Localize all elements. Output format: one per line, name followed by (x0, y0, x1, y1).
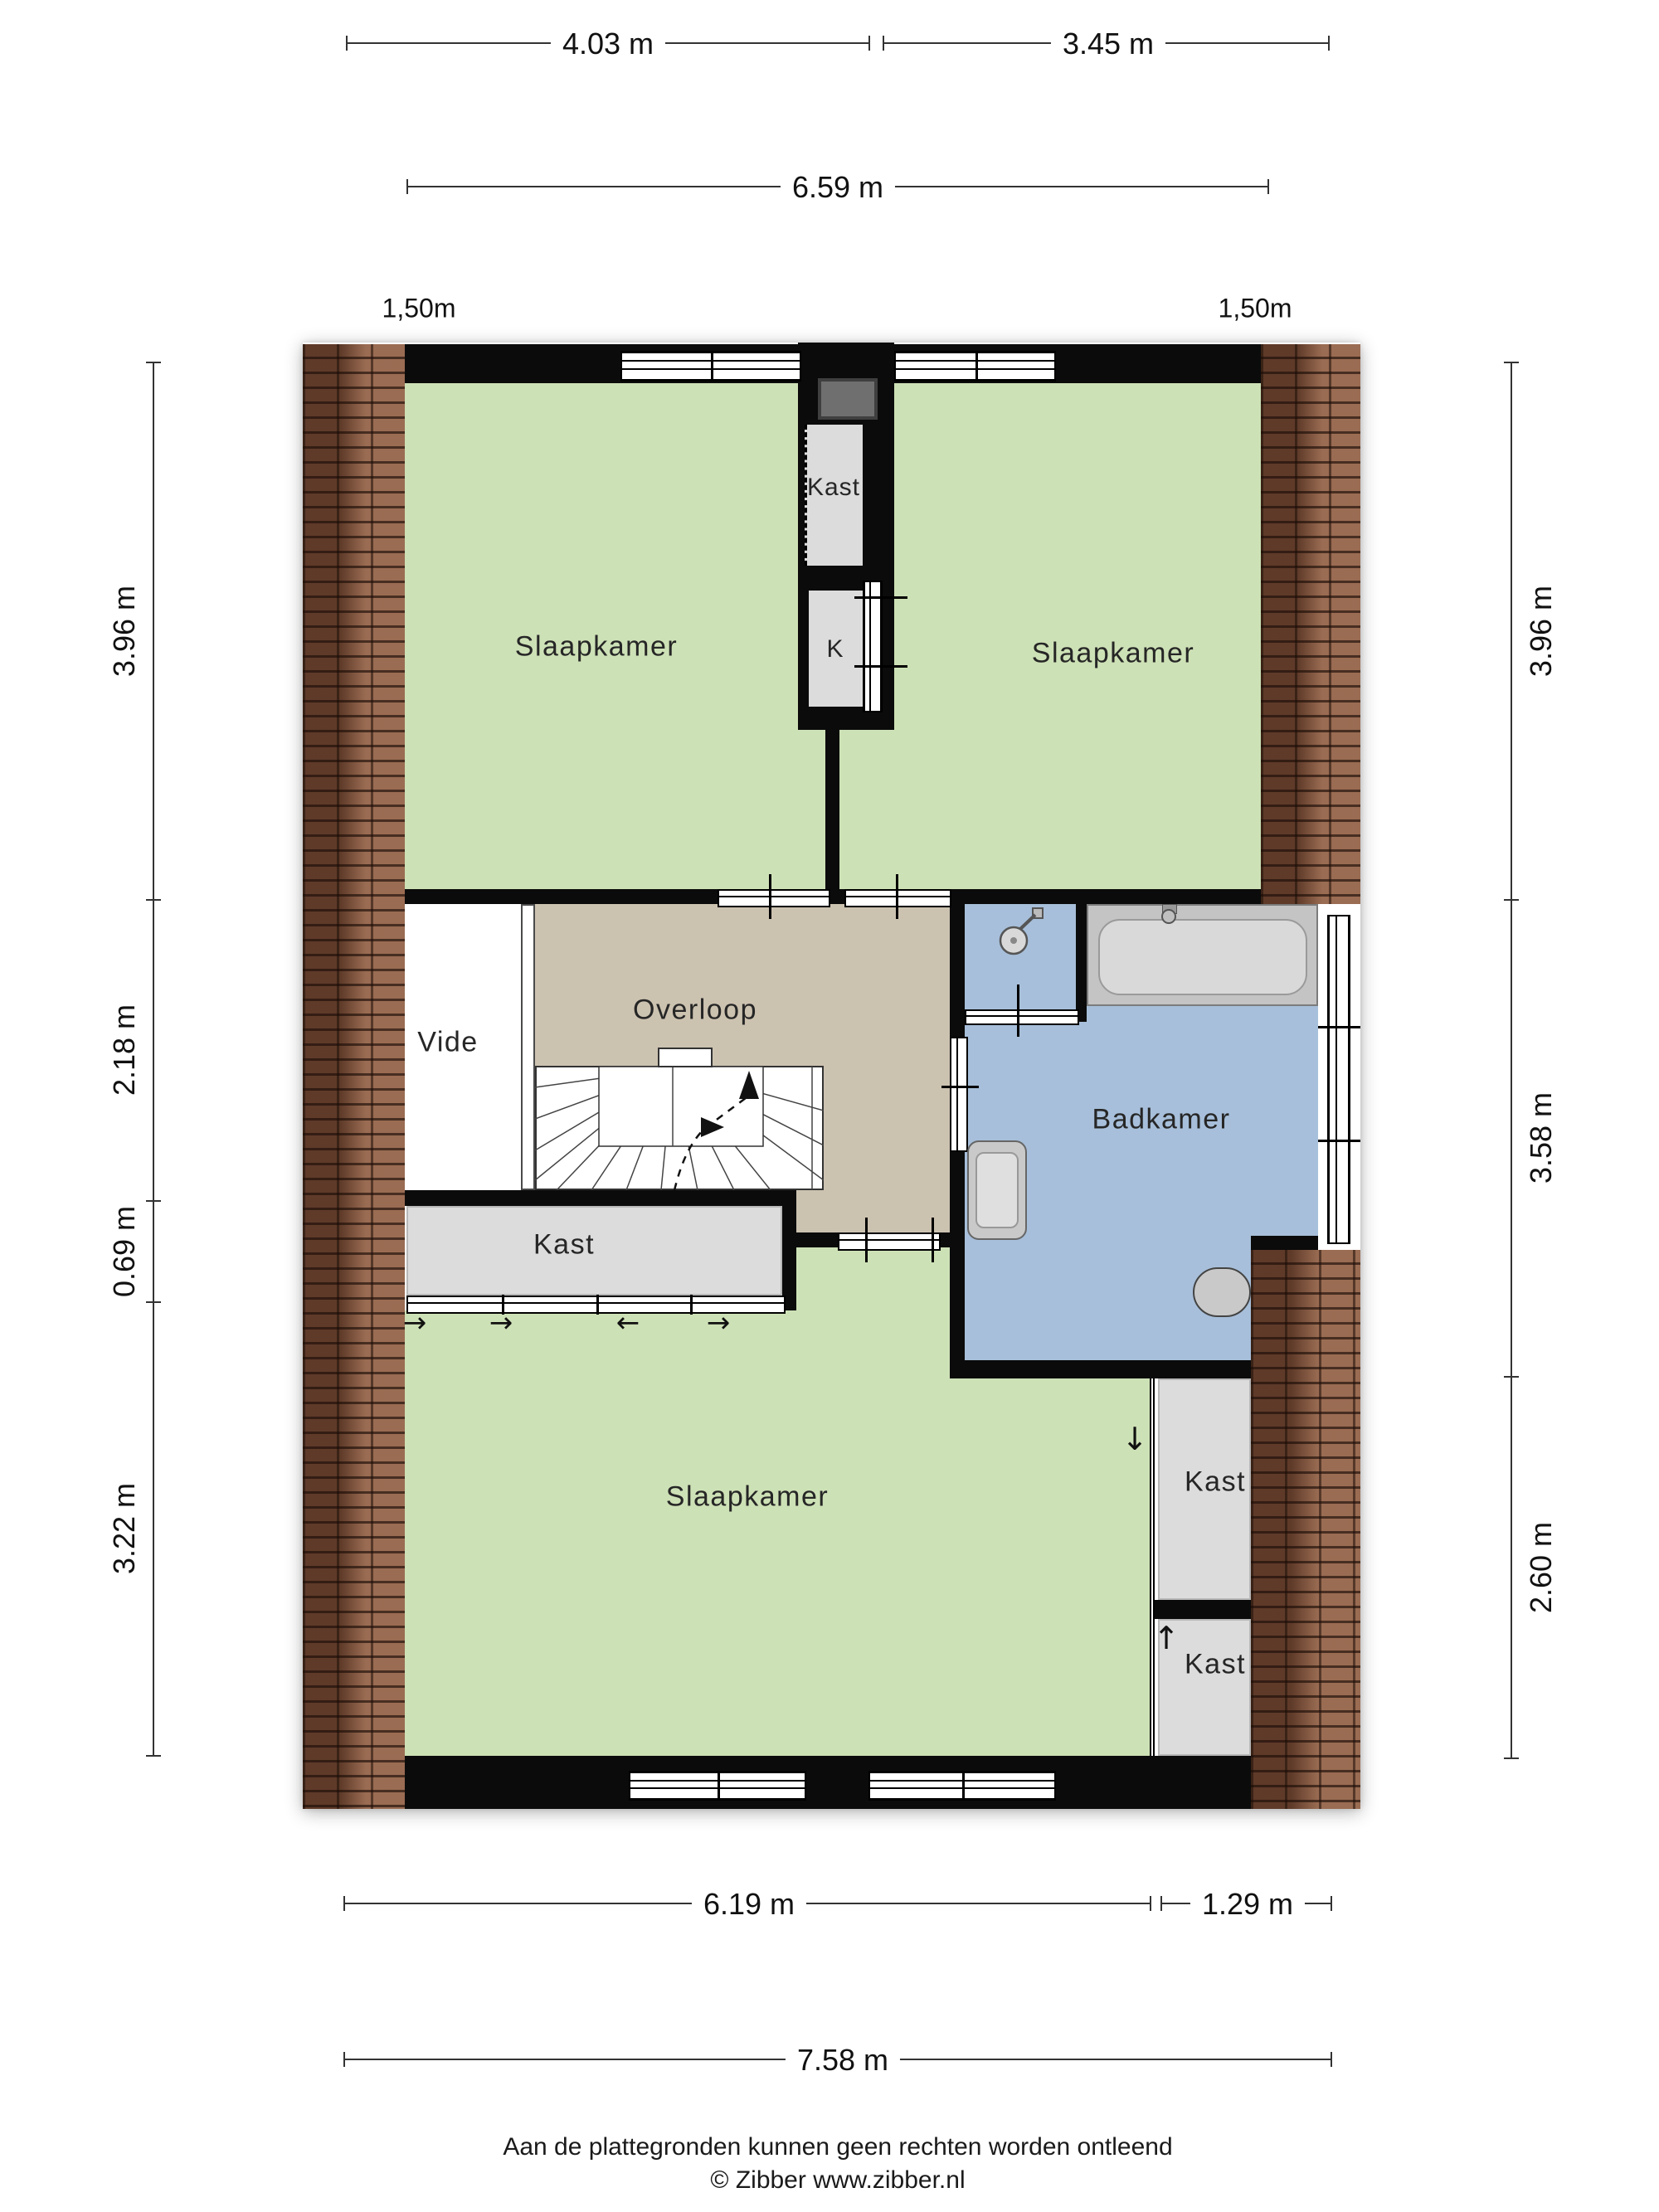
wall-badkamer-bottom (950, 1360, 1251, 1378)
wall-kast-separator (1150, 1600, 1251, 1619)
room-label-slaapkamer-tl: Slaapkamer (515, 631, 678, 664)
door-tick (1017, 984, 1019, 1037)
dimension-line-right (1511, 362, 1512, 1758)
window-symbol (868, 1771, 1056, 1801)
dimension-tick (146, 362, 161, 363)
wall-below-stairs (405, 1190, 796, 1206)
dimension-label-top-3: 6.59 m (781, 170, 895, 205)
room-label-k: K (826, 635, 844, 664)
window-symbol (894, 351, 1056, 382)
room-label-kast-right-bottom: Kast (1185, 1649, 1246, 1681)
toilet-icon (1193, 1267, 1251, 1317)
dimension-tick (1328, 36, 1330, 51)
window-tick (1318, 1026, 1360, 1028)
door-tick (896, 874, 898, 919)
dimension-label-right-2: 3.58 m (1524, 1084, 1559, 1192)
wall-kast-left-side (782, 1190, 796, 1310)
vide-railing (521, 904, 535, 1190)
room-slaapkamer-top-right (832, 383, 1261, 889)
knee-wall-label-right: 1,50m (1219, 294, 1292, 324)
dimension-label-bottom-1: 6.19 m (692, 1887, 806, 1922)
room-slaapkamer-bottom (782, 1310, 796, 1756)
sliding-door-track (1150, 1378, 1155, 1756)
dimension-tick (346, 36, 348, 51)
door-symbol (965, 1009, 1079, 1025)
door-tick (769, 874, 771, 919)
dimension-tick (343, 2052, 345, 2067)
dimension-tick (1331, 1896, 1332, 1911)
door-symbol (950, 1037, 968, 1152)
kast-door-arrow-icon: ↓ (1121, 1421, 1148, 1457)
wall-shower-right (1076, 904, 1087, 1022)
dimension-tick (146, 1755, 161, 1757)
dimension-label-right-1: 3.96 m (1524, 577, 1559, 685)
footer-copyright: © Zibber www.zibber.nl (710, 2166, 965, 2195)
window-tick (1318, 1140, 1360, 1142)
roof-brick-right-top (1261, 344, 1360, 904)
slide-arrow-icon: → (707, 1306, 731, 1339)
dimension-tick (1504, 899, 1519, 901)
bathtub-faucet-icon (1161, 909, 1176, 924)
door-tick (854, 596, 907, 599)
window-symbol (863, 581, 883, 712)
knee-wall-label-left: 1,50m (382, 294, 456, 324)
dimension-tick (406, 179, 408, 194)
dimension-tick (1150, 1896, 1151, 1911)
dimension-tick (343, 1896, 345, 1911)
room-slaapkamer-bottom (405, 1310, 782, 1756)
floorplan-page: 4.03 m 3.45 m 6.59 m 1,50m 1,50m 3.96 m … (0, 0, 1659, 2212)
door-tick (854, 665, 907, 668)
dimension-tick (1160, 1896, 1162, 1911)
sink-basin-icon (975, 1152, 1019, 1228)
window-symbol (620, 351, 801, 382)
shaft-duct (818, 378, 878, 420)
room-label-badkamer: Badkamer (1092, 1104, 1231, 1136)
dimension-tick (146, 899, 161, 901)
door-tick (865, 1218, 868, 1262)
slide-arrow-icon: → (489, 1306, 513, 1339)
dimension-tick (146, 1200, 161, 1202)
bathtub-basin-icon (1098, 919, 1307, 995)
door-symbol (838, 1232, 941, 1251)
dimension-label-left-4: 3.22 m (107, 1475, 142, 1582)
wall-bedroom-divider (825, 730, 839, 889)
door-tick (932, 1218, 934, 1262)
footer-disclaimer: Aan de plattegronden kunnen geen rechten… (503, 2133, 1172, 2161)
wall-bottom (405, 1756, 1251, 1809)
room-label-kast-left: Kast (533, 1229, 595, 1262)
room-label-slaapkamer-bottom: Slaapkamer (666, 1481, 829, 1514)
slide-arrow-icon: ← (616, 1306, 640, 1339)
floor-plan: → → ← → ↓ ↑ (303, 343, 1360, 1809)
dimension-label-bottom-3: 7.58 m (786, 2043, 900, 2078)
slide-arrow-icon: → (403, 1306, 427, 1339)
door-symbol (718, 889, 830, 907)
window-symbol (1327, 915, 1350, 1244)
dimension-label-top-2: 3.45 m (1051, 27, 1165, 61)
dimension-label-right-3: 2.60 m (1524, 1514, 1559, 1621)
room-label-overloop: Overloop (633, 994, 757, 1027)
door-tick (941, 1086, 979, 1088)
dimension-tick (883, 36, 884, 51)
room-label-kast-right-top: Kast (1185, 1466, 1246, 1499)
roof-brick-left (303, 344, 405, 1809)
dimension-tick (1331, 2052, 1332, 2067)
room-label-slaapkamer-tr: Slaapkamer (1032, 638, 1194, 670)
dimension-tick (1504, 362, 1519, 363)
wall-overloop-bottom (796, 1232, 838, 1247)
room-label-kast-shaft: Kast (807, 474, 860, 502)
dimension-tick (868, 36, 870, 51)
kast-door-arrow-icon: ↑ (1153, 1620, 1180, 1656)
dimension-tick (1267, 179, 1269, 194)
room-slaapkamer-bottom (950, 1378, 1150, 1756)
roof-brick-right-bottom (1251, 1250, 1360, 1809)
dimension-label-left-3: 0.69 m (107, 1198, 142, 1305)
room-label-vide: Vide (417, 1027, 478, 1059)
dimension-label-top-1: 4.03 m (551, 27, 665, 61)
window-symbol (629, 1771, 806, 1801)
dimension-line-left (153, 362, 154, 1756)
dimension-tick (1504, 1376, 1519, 1378)
dimension-tick (146, 1301, 161, 1303)
dimension-tick (1504, 1757, 1519, 1759)
dimension-label-left-1: 3.96 m (107, 577, 142, 685)
dimension-label-left-2: 2.18 m (107, 996, 142, 1104)
dimension-label-bottom-2: 1.29 m (1190, 1887, 1305, 1922)
shower-icon (991, 904, 1049, 962)
stairs (535, 1048, 824, 1190)
